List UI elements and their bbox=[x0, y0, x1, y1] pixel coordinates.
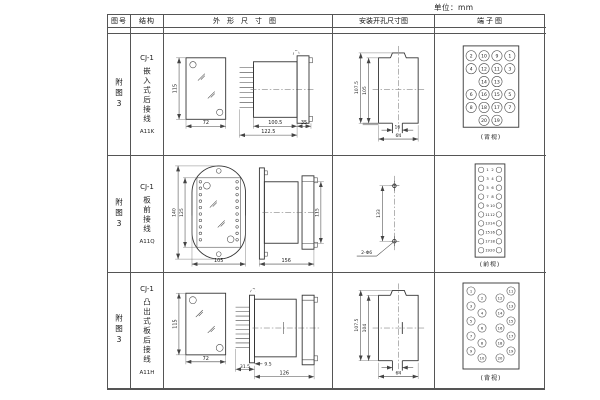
structure-code: A11H bbox=[140, 370, 155, 376]
dim-label: 104 bbox=[362, 324, 368, 333]
terminal-number: 14 bbox=[481, 79, 487, 85]
terminal-number: 4 bbox=[470, 66, 473, 72]
terminal-drawing-a11q: 1 2 3 4 5 6 7 8 9 10 11 12 13 14 15 16 1 bbox=[435, 156, 546, 273]
terminal-number: 12 bbox=[490, 213, 495, 217]
terminal-number: 20 bbox=[498, 356, 503, 360]
terminal-number: 15 bbox=[494, 92, 500, 98]
terminal-number: 18 bbox=[490, 240, 495, 244]
terminal-number: 17 bbox=[494, 105, 500, 111]
dim-label: 156 bbox=[281, 258, 290, 264]
terminal-number: 16 bbox=[490, 231, 495, 235]
terminal-svg-a11q: 1 2 3 4 5 6 7 8 9 10 11 12 13 14 15 16 1 bbox=[435, 156, 546, 272]
dim-label: 72 bbox=[203, 120, 209, 126]
figure-no-cell-a11q: 附图3 bbox=[108, 156, 131, 273]
terminal-number: 6 bbox=[470, 92, 473, 98]
figure-no-label: 附图3 bbox=[114, 78, 125, 111]
manual-page: 单位：mm 图号 结构 外形尺寸图 安装开孔尺寸图 端子图 附图3 CJ-1 嵌… bbox=[0, 0, 600, 400]
terminal-number: 8 bbox=[470, 105, 473, 111]
structure-desc: 板前接线 bbox=[142, 196, 153, 234]
hole-note-label: 2-Φ6 bbox=[361, 250, 372, 256]
terminal-number: 14 bbox=[490, 222, 495, 226]
terminal-number: 9 bbox=[470, 349, 473, 353]
side-view: 100.5 35 122.5 bbox=[240, 50, 314, 137]
terminal-circles: 1 2 3 4 5 6 7 8 9 10 11 12 13 14 15 16 1 bbox=[478, 167, 501, 253]
figure-no-label: 附图3 bbox=[114, 198, 125, 231]
install-drawing-a11q: 133 2-Φ6 bbox=[333, 156, 435, 273]
figure-no-label: 附图3 bbox=[114, 314, 125, 347]
terminal-number: 12 bbox=[498, 296, 503, 300]
terminal-number: 18 bbox=[498, 341, 503, 345]
terminal-number: 19 bbox=[509, 349, 514, 353]
terminal-svg-a11h: 1 3 5 7 9 2 4 6 8 10 12 14 16 18 20 11 1 bbox=[435, 273, 546, 388]
dim-label: 35 bbox=[301, 120, 307, 126]
dim-label: 9.5 bbox=[264, 361, 271, 367]
terminal-number: 2 bbox=[470, 54, 473, 60]
terminal-number: 13 bbox=[494, 79, 500, 85]
structure-cell-a11k: CJ-1 嵌入式后接线 A11K bbox=[131, 34, 164, 156]
dim-label: 126 bbox=[280, 371, 289, 377]
dim-label: 115 bbox=[173, 84, 179, 93]
front-view: 115 72 bbox=[172, 293, 225, 364]
terminal-number: 15 bbox=[509, 319, 514, 323]
model-label: CJ-1 bbox=[140, 285, 154, 293]
terminal-number: 5 bbox=[508, 92, 511, 98]
dim-label: 72 bbox=[203, 356, 209, 362]
install-svg-a11q: 133 2-Φ6 bbox=[333, 156, 434, 272]
outline-svg-a11q: 140 125 105 bbox=[164, 156, 332, 272]
dimension-table: 图号 结构 外形尺寸图 安装开孔尺寸图 端子图 附图3 CJ-1 嵌入式后接线 … bbox=[107, 14, 545, 390]
install-svg-a11k: 107.5 105 16 64 bbox=[333, 34, 434, 155]
terminal-number: 5 bbox=[470, 319, 473, 323]
terminal-number: 5 bbox=[486, 186, 488, 190]
dim-label: 115 bbox=[314, 208, 320, 217]
dim-label: 105 bbox=[362, 86, 368, 95]
side-view: 9.5 31.5 126 bbox=[236, 288, 320, 379]
terminal-number: 3 bbox=[470, 304, 473, 308]
dim-label: 64 bbox=[395, 371, 401, 377]
dim-label: 100.5 bbox=[268, 120, 282, 126]
terminal-number: 8 bbox=[481, 341, 484, 345]
unit-label: 单位：mm bbox=[434, 2, 474, 13]
terminal-number: 2 bbox=[491, 168, 493, 172]
front-view: 115 72 bbox=[173, 58, 226, 129]
view-label: (背视) bbox=[481, 133, 501, 141]
terminal-number: 10 bbox=[480, 356, 485, 360]
dim-label: 133 bbox=[376, 209, 382, 218]
terminal-svg-a11k: 2 10 9 1 4 12 11 3 14 13 6 16 15 5 8 18 bbox=[435, 34, 546, 155]
terminal-number: 16 bbox=[498, 326, 503, 330]
terminal-circles: 2 10 9 1 4 12 11 3 14 13 6 16 15 5 8 18 bbox=[466, 51, 515, 126]
dim-label: 64 bbox=[395, 133, 401, 139]
terminal-number: 9 bbox=[486, 204, 489, 208]
outline-svg-a11h: 115 72 9 bbox=[164, 273, 332, 388]
front-view: 140 125 105 bbox=[172, 166, 246, 267]
terminal-number: 7 bbox=[508, 105, 511, 111]
figure-no-cell-a11h: 附图3 bbox=[108, 273, 131, 388]
terminal-number: 20 bbox=[490, 248, 495, 252]
dim-label: 105 bbox=[214, 258, 223, 264]
outline-drawing-a11h: 115 72 9 bbox=[164, 273, 333, 388]
terminal-number: 6 bbox=[481, 326, 484, 330]
terminal-number: 12 bbox=[481, 66, 487, 72]
structure-cell-a11q: CJ-1 板前接线 A11Q bbox=[131, 156, 164, 273]
terminal-number: 20 bbox=[481, 118, 487, 124]
structure-code: A11K bbox=[140, 129, 154, 135]
install-drawing-a11k: 107.5 105 16 64 bbox=[333, 34, 435, 156]
header-install: 安装开孔尺寸图 bbox=[333, 15, 435, 28]
terminal-number: 4 bbox=[491, 177, 494, 181]
terminal-number: 11 bbox=[485, 213, 490, 217]
view-label: (前视) bbox=[480, 260, 500, 268]
side-view: 115 156 bbox=[259, 168, 323, 267]
header-outline: 外形尺寸图 bbox=[164, 15, 333, 28]
install-svg-a11h: 107.5 104 64 bbox=[333, 273, 434, 388]
outline-drawing-a11k: 115 72 bbox=[164, 34, 333, 156]
dim-label: 16 bbox=[394, 125, 400, 131]
terminal-circles: 1 3 5 7 9 2 4 6 8 10 12 14 16 18 20 11 1 bbox=[467, 287, 515, 362]
terminal-number: 1 bbox=[486, 168, 488, 172]
terminal-number: 7 bbox=[470, 334, 473, 338]
dim-label: 125 bbox=[179, 208, 185, 217]
terminal-number: 10 bbox=[490, 204, 495, 208]
terminal-number: 16 bbox=[481, 92, 487, 98]
terminal-number: 2 bbox=[481, 296, 483, 300]
terminal-number: 1 bbox=[470, 289, 472, 293]
terminal-number: 13 bbox=[509, 304, 514, 308]
terminal-number: 7 bbox=[486, 195, 489, 199]
terminal-number: 11 bbox=[494, 66, 500, 72]
terminal-number: 15 bbox=[485, 231, 490, 235]
outline-drawing-a11q: 140 125 105 bbox=[164, 156, 333, 273]
terminal-number: 8 bbox=[491, 195, 494, 199]
model-label: CJ-1 bbox=[140, 183, 154, 191]
install-drawing-a11h: 107.5 104 64 bbox=[333, 273, 435, 388]
terminal-number: 1 bbox=[508, 54, 511, 60]
terminal-number: 17 bbox=[509, 334, 514, 338]
terminal-number: 14 bbox=[498, 311, 503, 315]
dim-label: 115 bbox=[172, 319, 178, 328]
terminal-drawing-a11h: 1 3 5 7 9 2 4 6 8 10 12 14 16 18 20 11 1 bbox=[435, 273, 546, 388]
structure-cell-a11h: CJ-1 凸出式板后接线 A11H bbox=[131, 273, 164, 388]
terminal-number: 11 bbox=[509, 289, 514, 293]
terminal-drawing-a11k: 2 10 9 1 4 12 11 3 14 13 6 16 15 5 8 18 bbox=[435, 34, 546, 156]
terminal-number: 3 bbox=[486, 177, 489, 181]
view-label: (背视) bbox=[481, 374, 502, 382]
terminal-number: 9 bbox=[495, 54, 498, 60]
header-terminal: 端子图 bbox=[435, 15, 546, 28]
terminal-number: 10 bbox=[481, 54, 487, 60]
figure-no-cell-a11k: 附图3 bbox=[108, 34, 131, 156]
header-structure: 结构 bbox=[131, 15, 164, 28]
terminal-number: 4 bbox=[481, 311, 484, 315]
dim-label: 107.5 bbox=[354, 318, 360, 331]
header-figure-no: 图号 bbox=[108, 15, 131, 28]
structure-desc: 嵌入式后接线 bbox=[142, 67, 153, 124]
model-label: CJ-1 bbox=[140, 54, 154, 62]
dim-label: 107.5 bbox=[354, 81, 360, 94]
outline-svg-a11k: 115 72 bbox=[164, 34, 332, 155]
structure-desc: 凸出式板后接线 bbox=[142, 298, 153, 365]
dim-label: 140 bbox=[172, 208, 178, 217]
terminal-number: 18 bbox=[481, 105, 487, 111]
terminal-number: 3 bbox=[508, 66, 511, 72]
dim-label: 122.5 bbox=[261, 129, 275, 135]
terminal-number: 6 bbox=[491, 186, 494, 190]
structure-code: A11Q bbox=[139, 239, 154, 245]
dim-label: 31.5 bbox=[240, 364, 250, 370]
terminal-number: 19 bbox=[494, 118, 500, 124]
